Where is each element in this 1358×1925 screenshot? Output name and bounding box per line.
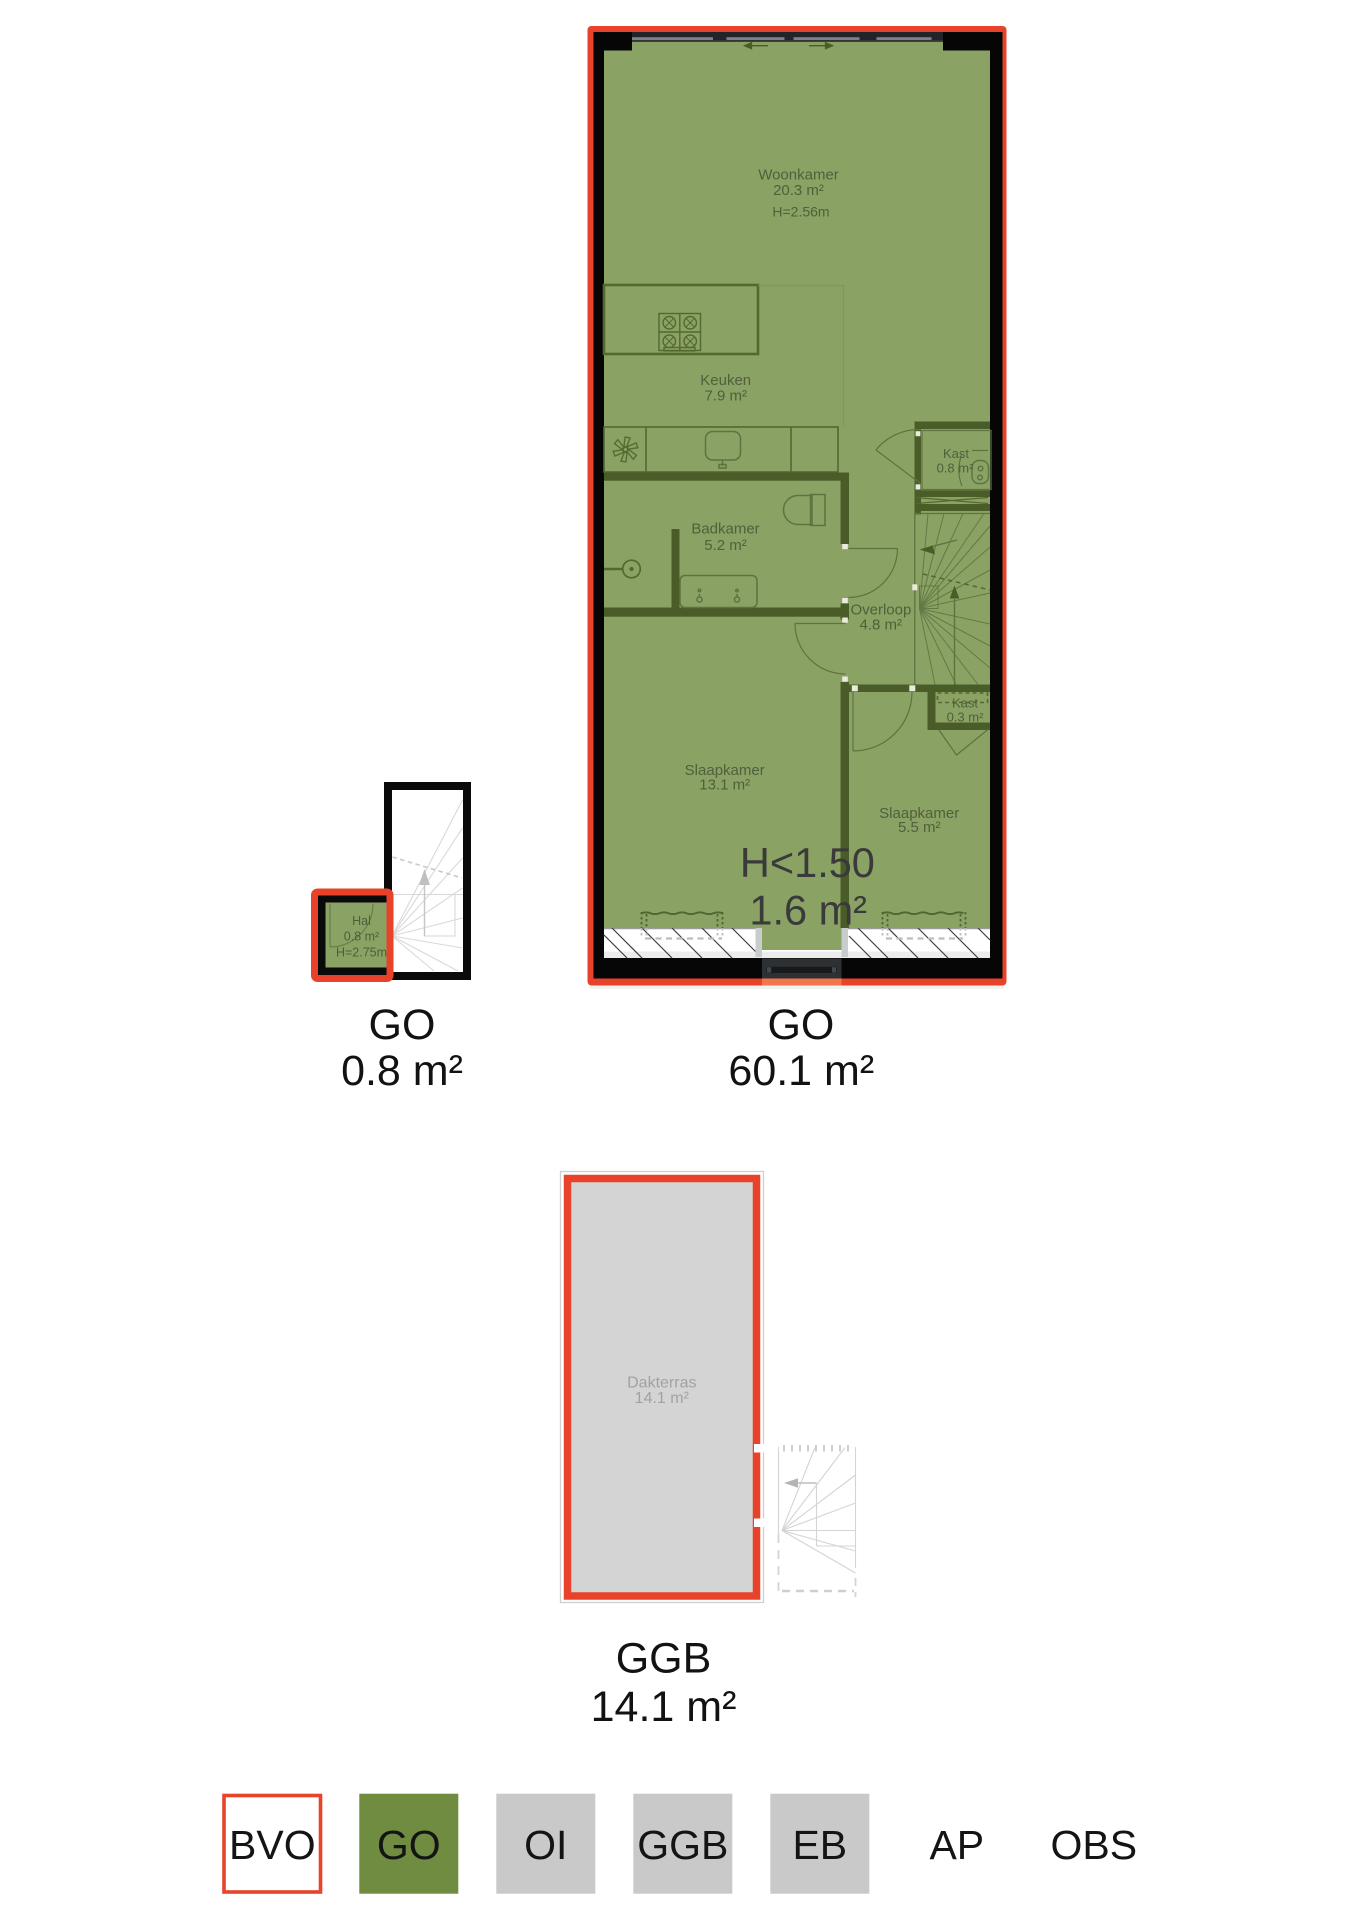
svg-text:Hal: Hal — [352, 914, 371, 928]
svg-text:BVO: BVO — [229, 1822, 316, 1868]
svg-text:OBS: OBS — [1051, 1822, 1138, 1868]
svg-text:Woonkamer: Woonkamer — [758, 166, 839, 183]
svg-text:GGB: GGB — [616, 1634, 712, 1682]
svg-text:7.9 m²: 7.9 m² — [704, 387, 747, 404]
svg-text:5.5 m²: 5.5 m² — [898, 819, 941, 836]
svg-text:OI: OI — [524, 1822, 567, 1868]
svg-text:H=2.75m: H=2.75m — [336, 946, 387, 960]
svg-text:Kast: Kast — [952, 695, 978, 710]
svg-text:0.3 m²: 0.3 m² — [947, 709, 985, 724]
svg-text:AP: AP — [929, 1822, 984, 1868]
svg-text:Dakterras: Dakterras — [627, 1375, 696, 1392]
svg-text:60.1 m²: 60.1 m² — [728, 1047, 874, 1095]
svg-text:GO: GO — [767, 1001, 834, 1049]
svg-text:14.1 m²: 14.1 m² — [635, 1390, 690, 1407]
svg-text:EB: EB — [792, 1822, 847, 1868]
svg-text:H<1.50: H<1.50 — [740, 839, 875, 886]
svg-text:Kast: Kast — [943, 446, 969, 461]
svg-text:H=2.56m: H=2.56m — [772, 203, 829, 219]
svg-text:GGB: GGB — [637, 1822, 728, 1868]
svg-text:0.8 m²: 0.8 m² — [341, 1047, 463, 1095]
svg-text:1.6 m²: 1.6 m² — [749, 887, 867, 934]
svg-text:13.1 m²: 13.1 m² — [699, 777, 750, 794]
svg-text:14.1 m²: 14.1 m² — [591, 1683, 737, 1731]
svg-text:0.8 m²: 0.8 m² — [344, 929, 379, 943]
svg-text:20.3 m²: 20.3 m² — [773, 182, 824, 199]
svg-text:GO: GO — [377, 1822, 441, 1868]
svg-text:4.8 m²: 4.8 m² — [860, 617, 903, 634]
svg-text:0.8 m²: 0.8 m² — [937, 460, 975, 475]
svg-text:Badkamer: Badkamer — [691, 521, 759, 538]
svg-text:GO: GO — [369, 1001, 436, 1049]
svg-text:5.2 m²: 5.2 m² — [704, 537, 747, 554]
